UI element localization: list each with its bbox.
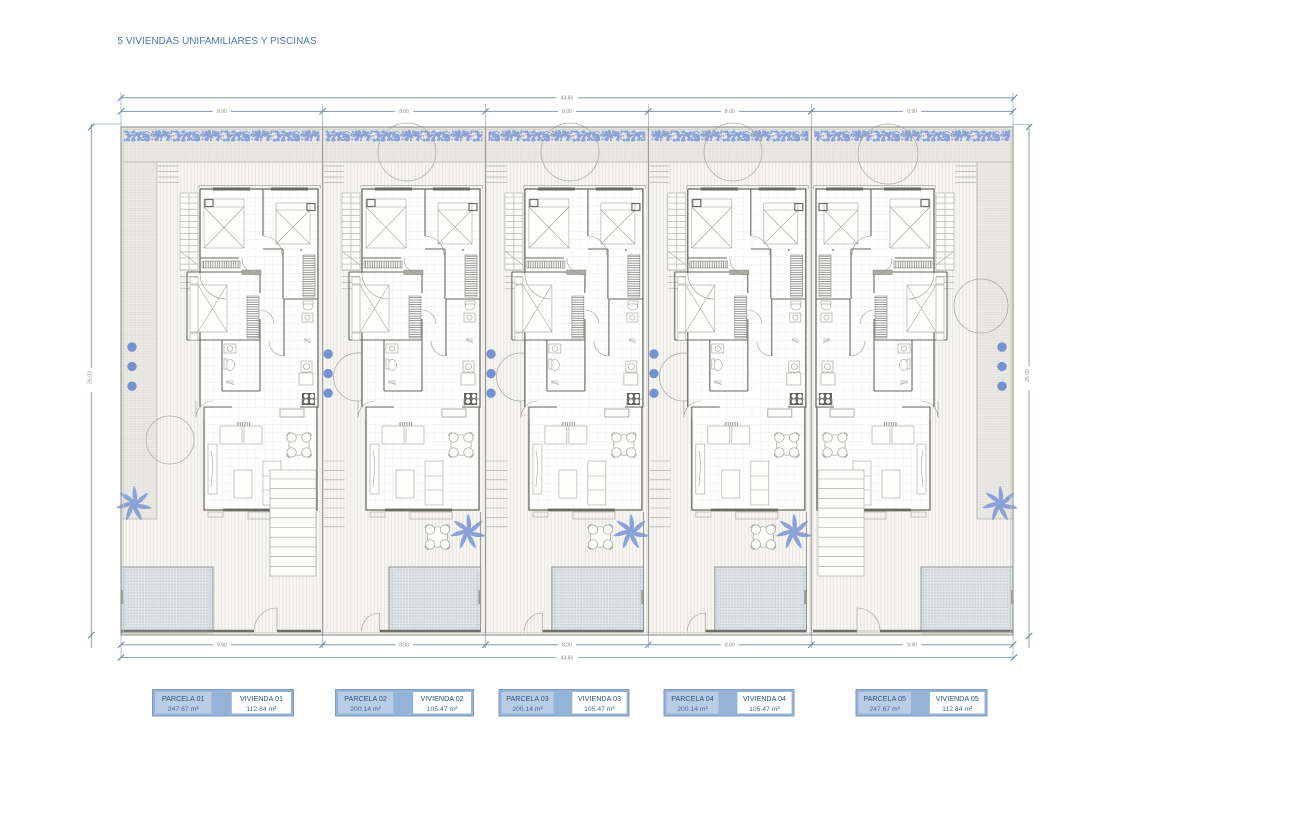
svg-text:VIVIENDA 05: VIVIENDA 05: [936, 694, 979, 703]
svg-text:VIVIENDA 04: VIVIENDA 04: [743, 694, 786, 703]
svg-text:105.47 m²: 105.47 m²: [749, 706, 780, 713]
svg-text:112.84 m²: 112.84 m²: [942, 706, 973, 713]
svg-text:26.02: 26.02: [88, 371, 94, 384]
svg-text:VIVIENDA 01: VIVIENDA 01: [240, 694, 283, 703]
svg-text:105.47 m²: 105.47 m²: [427, 706, 458, 713]
svg-text:PARCELA 02: PARCELA 02: [344, 694, 387, 703]
svg-text:8.00: 8.00: [562, 109, 572, 115]
svg-text:200.14 m²: 200.14 m²: [512, 706, 543, 713]
svg-text:5 VIVIENDAS UNIFAMILIARES Y PI: 5 VIVIENDAS UNIFAMILIARES Y PISCINAS: [118, 36, 317, 47]
svg-text:112.84 m²: 112.84 m²: [246, 706, 277, 713]
svg-text:8.00: 8.00: [562, 643, 572, 649]
svg-text:PARCELA 04: PARCELA 04: [671, 694, 714, 703]
svg-text:VIVIENDA 03: VIVIENDA 03: [578, 694, 621, 703]
svg-text:PARCELA 03: PARCELA 03: [506, 694, 549, 703]
svg-text:25.02: 25.02: [1025, 369, 1031, 382]
svg-text:8.00: 8.00: [725, 109, 735, 115]
svg-text:8.00: 8.00: [725, 643, 735, 649]
svg-text:43.80: 43.80: [561, 96, 574, 102]
svg-text:PARCELA 01: PARCELA 01: [162, 694, 205, 703]
svg-text:247.67 m²: 247.67 m²: [168, 706, 199, 713]
svg-text:200.14 m²: 200.14 m²: [350, 706, 381, 713]
svg-text:8.00: 8.00: [399, 643, 409, 649]
svg-text:247.67 m²: 247.67 m²: [869, 706, 900, 713]
svg-text:8.00: 8.00: [399, 109, 409, 115]
svg-text:9.90: 9.90: [907, 643, 917, 649]
svg-text:200.14 m²: 200.14 m²: [677, 706, 708, 713]
svg-text:105.47 m²: 105.47 m²: [584, 706, 615, 713]
svg-text:9.90: 9.90: [907, 109, 917, 115]
svg-text:PARCELA 05: PARCELA 05: [863, 694, 906, 703]
svg-text:9.90: 9.90: [217, 643, 227, 649]
svg-text:VIVIENDA 02: VIVIENDA 02: [421, 694, 464, 703]
svg-text:43.80: 43.80: [561, 655, 574, 661]
svg-text:9.90: 9.90: [217, 109, 227, 115]
